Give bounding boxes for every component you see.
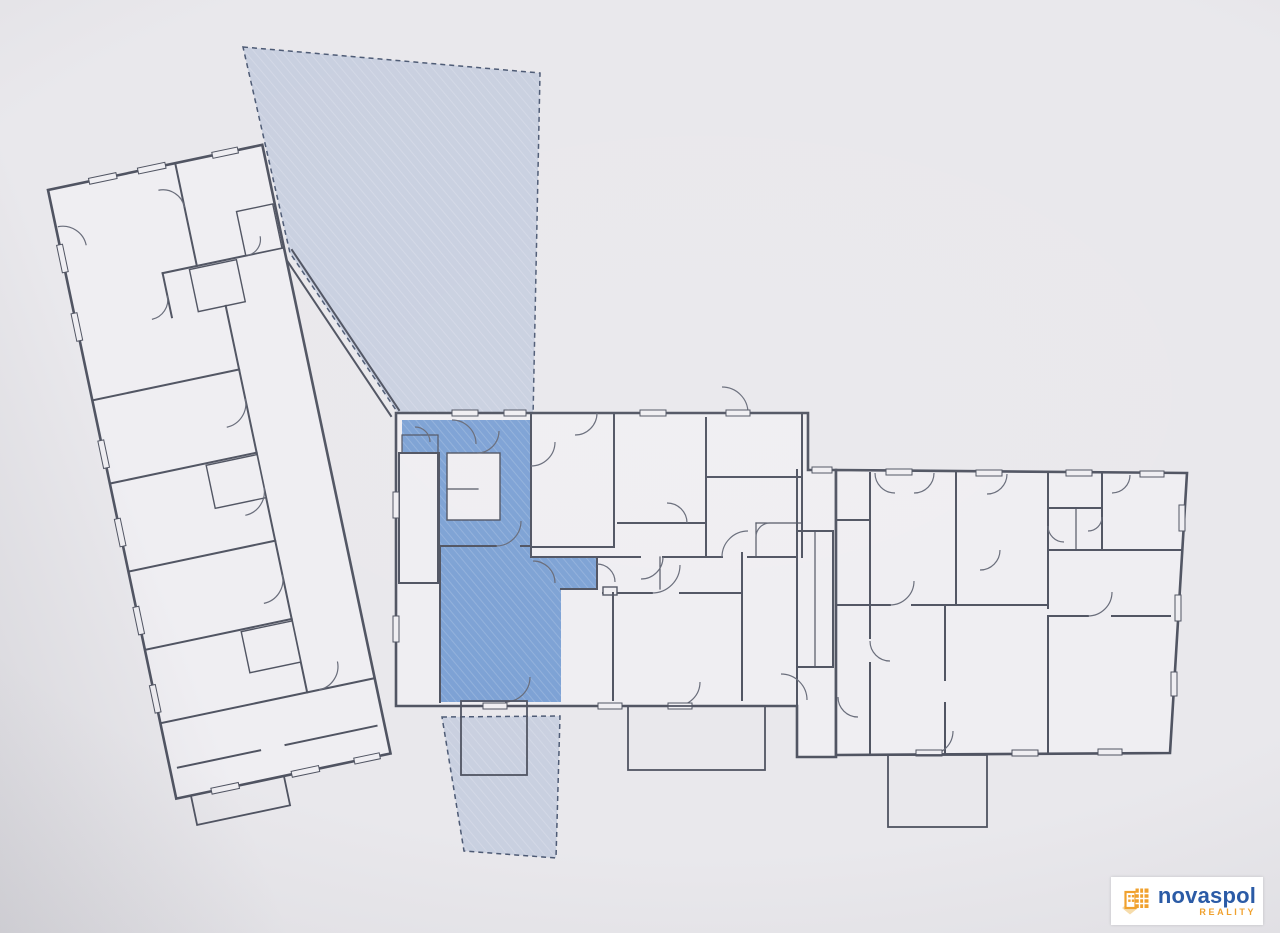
logo-name: novaspol — [1158, 885, 1256, 907]
novaspol-building-icon — [1118, 884, 1154, 918]
scanned-floorplan-page: { "theme": { "paper": "#e9e8ec", "room":… — [0, 0, 1280, 933]
logo-novaspol: novaspol REALITY — [1111, 877, 1263, 925]
logo-tagline: REALITY — [1158, 908, 1256, 917]
central-block — [393, 387, 836, 775]
logo-text: novaspol REALITY — [1158, 885, 1256, 917]
terrace-central — [628, 706, 765, 770]
bathroom-box — [447, 453, 500, 520]
right-wing — [836, 469, 1187, 827]
balcony-right-wing — [888, 755, 987, 827]
floor-plan-drawing — [0, 0, 1280, 933]
bottom-garden — [442, 716, 560, 858]
